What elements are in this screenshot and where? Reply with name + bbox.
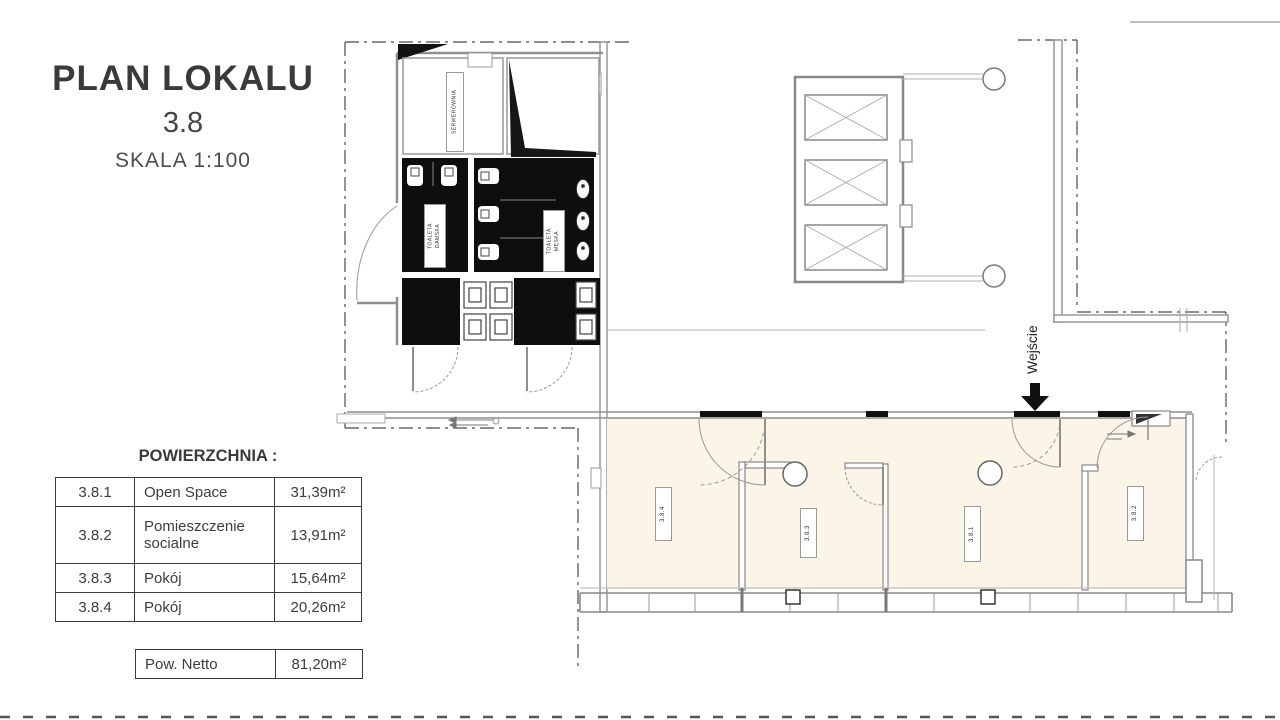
table-row: Pow. Netto 81,20m² (136, 650, 363, 679)
room-id: 3.8.3 (56, 564, 135, 593)
room-name: Pokój (135, 564, 275, 593)
room-label-toaleta-damska: TOALETA DAMSKA (424, 204, 446, 268)
room-label-toaleta-meska: TOALETA MĘSKA (543, 210, 565, 272)
area-table: 3.8.1 Open Space 31,39m² 3.8.2 Pomieszcz… (55, 477, 362, 622)
room-label-3-8-2: 3.8.2 (1127, 486, 1144, 541)
unit-number: 3.8 (18, 107, 348, 140)
entrance-arrow-icon (1021, 383, 1049, 411)
column-circle (978, 461, 1002, 485)
room-id: 3.8.4 (56, 593, 135, 622)
table-row: 3.8.3 Pokój 15,64m² (56, 564, 362, 593)
urinal-icon (577, 180, 590, 261)
room-area: 20,26m² (275, 593, 362, 622)
column-circle (783, 462, 807, 486)
area-table-heading: POWIERZCHNIA : (55, 447, 361, 466)
column-circle (983, 265, 1005, 287)
table-row: 3.8.2 Pomieszczenie socialne 13,91m² (56, 507, 362, 564)
room-area: 31,39m² (275, 478, 362, 507)
toilet-icon (478, 168, 499, 260)
window-mullions (607, 593, 1218, 612)
room-area: 13,91m² (275, 507, 362, 564)
room-label-serwerownia: SERWEROWNIA (446, 72, 464, 152)
unit-3-8 (337, 411, 1232, 612)
column-circle (983, 68, 1005, 90)
net-label: Pow. Netto (136, 650, 276, 679)
scale-label: SKALA 1:100 (18, 149, 348, 173)
building-shell (607, 22, 1280, 332)
room-name: Pokój (135, 593, 275, 622)
room-id: 3.8.2 (56, 507, 135, 564)
table-row: 3.8.4 Pokój 20,26m² (56, 593, 362, 622)
entrance-label: Wejście (1019, 318, 1045, 382)
title-block: PLAN LOKALU 3.8 SKALA 1:100 (18, 60, 348, 173)
net-area: 81,20m² (276, 650, 363, 679)
room-label-3-8-3: 3.8.3 (800, 508, 817, 558)
net-area-table: Pow. Netto 81,20m² (135, 649, 363, 679)
toilets-block (402, 158, 600, 392)
room-id: 3.8.1 (56, 478, 135, 507)
room-area: 15,64m² (275, 564, 362, 593)
page-title: PLAN LOKALU (18, 60, 348, 99)
room-label-3-8-4: 3.8.4 (655, 487, 672, 541)
room-label-3-8-1: 3.8.1 (964, 506, 981, 562)
table-row: 3.8.1 Open Space 31,39m² (56, 478, 362, 507)
room-name: Pomieszczenie socialne (135, 507, 275, 564)
room-name: Open Space (135, 478, 275, 507)
elevator-block (795, 68, 1005, 287)
